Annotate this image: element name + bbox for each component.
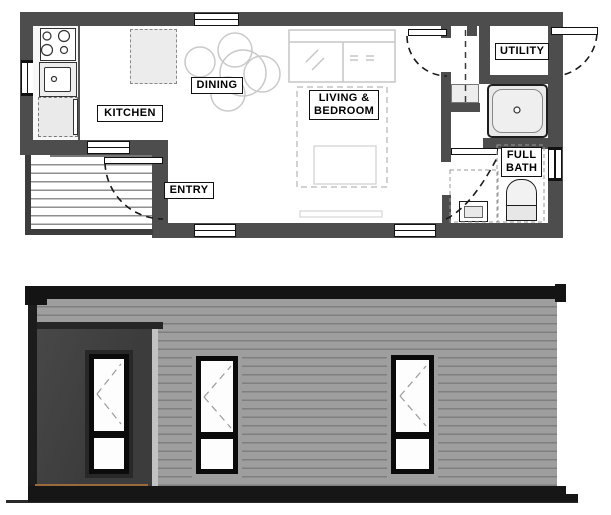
window-pane-upper [396,360,429,432]
bed-inner [314,146,376,184]
wall-utility-left [479,26,490,78]
window-glazing-line [88,147,129,149]
window-pane-upper [201,361,233,432]
door-swing-utility [563,34,597,75]
door-leaf-utility [551,27,598,35]
door-leaf-bath [451,148,498,155]
bathtub-inner [492,89,543,133]
elevation-base-foot [563,494,578,502]
bath-sink-basin [464,206,483,218]
elevation-roof-left-tab [25,286,47,305]
wall-closet-stub [441,103,480,112]
window-frame [89,354,129,474]
dishwasher-handle [73,99,78,135]
window-glazing-line [195,230,235,232]
label-full-bath: FULL BATH [501,147,542,177]
wall-hall-lower-stub [442,195,451,223]
porch-edge-bottom [25,229,153,235]
dishwasher [38,97,78,137]
door-leaf-entry [104,157,163,164]
wall-utility-bottom [479,75,548,84]
toilet-bowl [506,179,537,208]
refrigerator [130,29,177,84]
label-living-bedroom: LIVING & BEDROOM [309,90,379,120]
porch-edge-left [25,155,31,235]
elevation-base-band [28,486,566,502]
wall-right [548,12,563,238]
elevation-left-corner-trim [28,299,37,488]
door-leaf-living [408,29,447,36]
window-glazing-line [395,230,435,232]
label-kitchen: KITCHEN [97,105,163,122]
window-pane-lower [94,438,124,469]
wall-hall-upper [441,72,451,162]
window-pane-upper [94,359,124,431]
elevation-roof-right-tab [555,284,566,302]
window-top [194,13,239,26]
window-frame [196,356,238,474]
door-swing-living [407,36,447,76]
hall-closet [451,84,479,103]
toilet-base [506,205,537,221]
window-kitchen [87,141,130,154]
elevation-panel-right-trim [152,329,158,488]
dining-table-set [185,33,280,111]
window-right [548,147,562,181]
door-jamb-utility [467,26,477,36]
kitchen-sink-basin [44,67,71,92]
window-pane-lower [201,439,233,469]
window-frame [391,355,434,474]
label-entry: ENTRY [164,182,214,199]
label-dining: DINING [191,77,243,94]
window-glazing-line [554,150,556,178]
window-bottom-1 [194,224,236,237]
porch-steps [30,157,152,229]
elevation-window-left [85,350,133,478]
elevation-roof [25,286,565,299]
window-pane-lower [396,439,429,469]
stove [40,28,76,61]
sofa [289,30,395,82]
media-console [300,211,382,217]
window-bottom-2 [394,224,436,237]
label-utility: UTILITY [495,43,549,60]
wall-top [20,12,563,26]
drawing-sheet: KITCHEN DINING LIVING & BEDROOM ENTRY UT… [0,0,611,515]
window-glazing-line [27,63,29,93]
elevation-panel-top-trim [37,322,163,329]
elevation-window-middle [192,352,242,478]
elevation-window-right [387,351,438,478]
window-glazing-line [195,19,238,21]
